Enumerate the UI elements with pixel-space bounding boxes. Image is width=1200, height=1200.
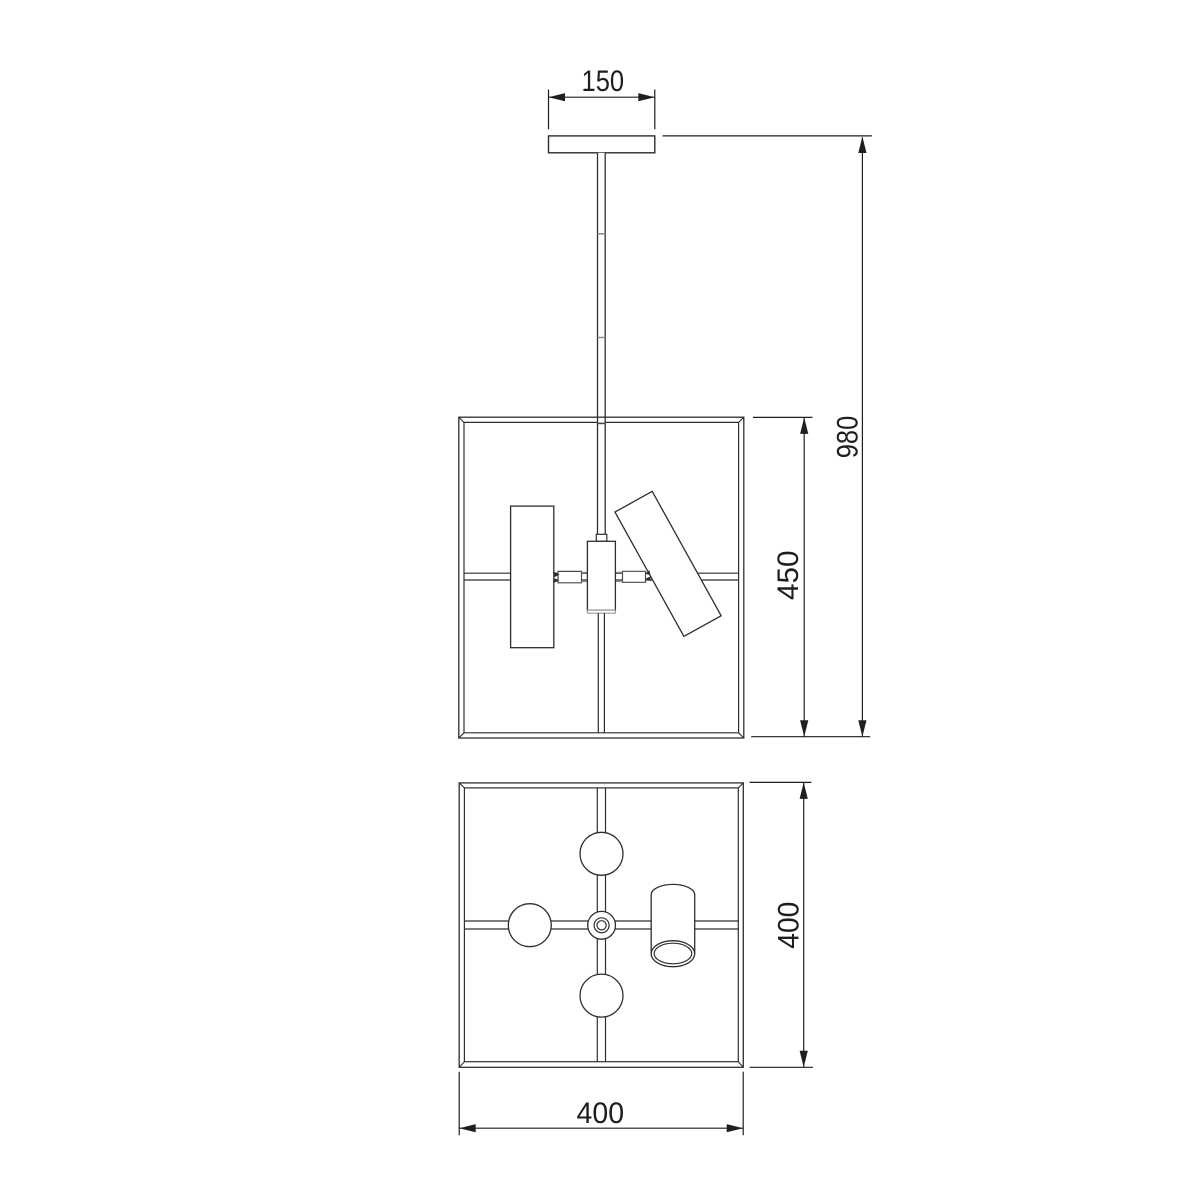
svg-text:400: 400 — [773, 902, 806, 949]
svg-text:400: 400 — [577, 1097, 625, 1130]
svg-text:150: 150 — [582, 65, 625, 98]
svg-text:980: 980 — [831, 416, 864, 459]
svg-text:450: 450 — [772, 551, 805, 601]
